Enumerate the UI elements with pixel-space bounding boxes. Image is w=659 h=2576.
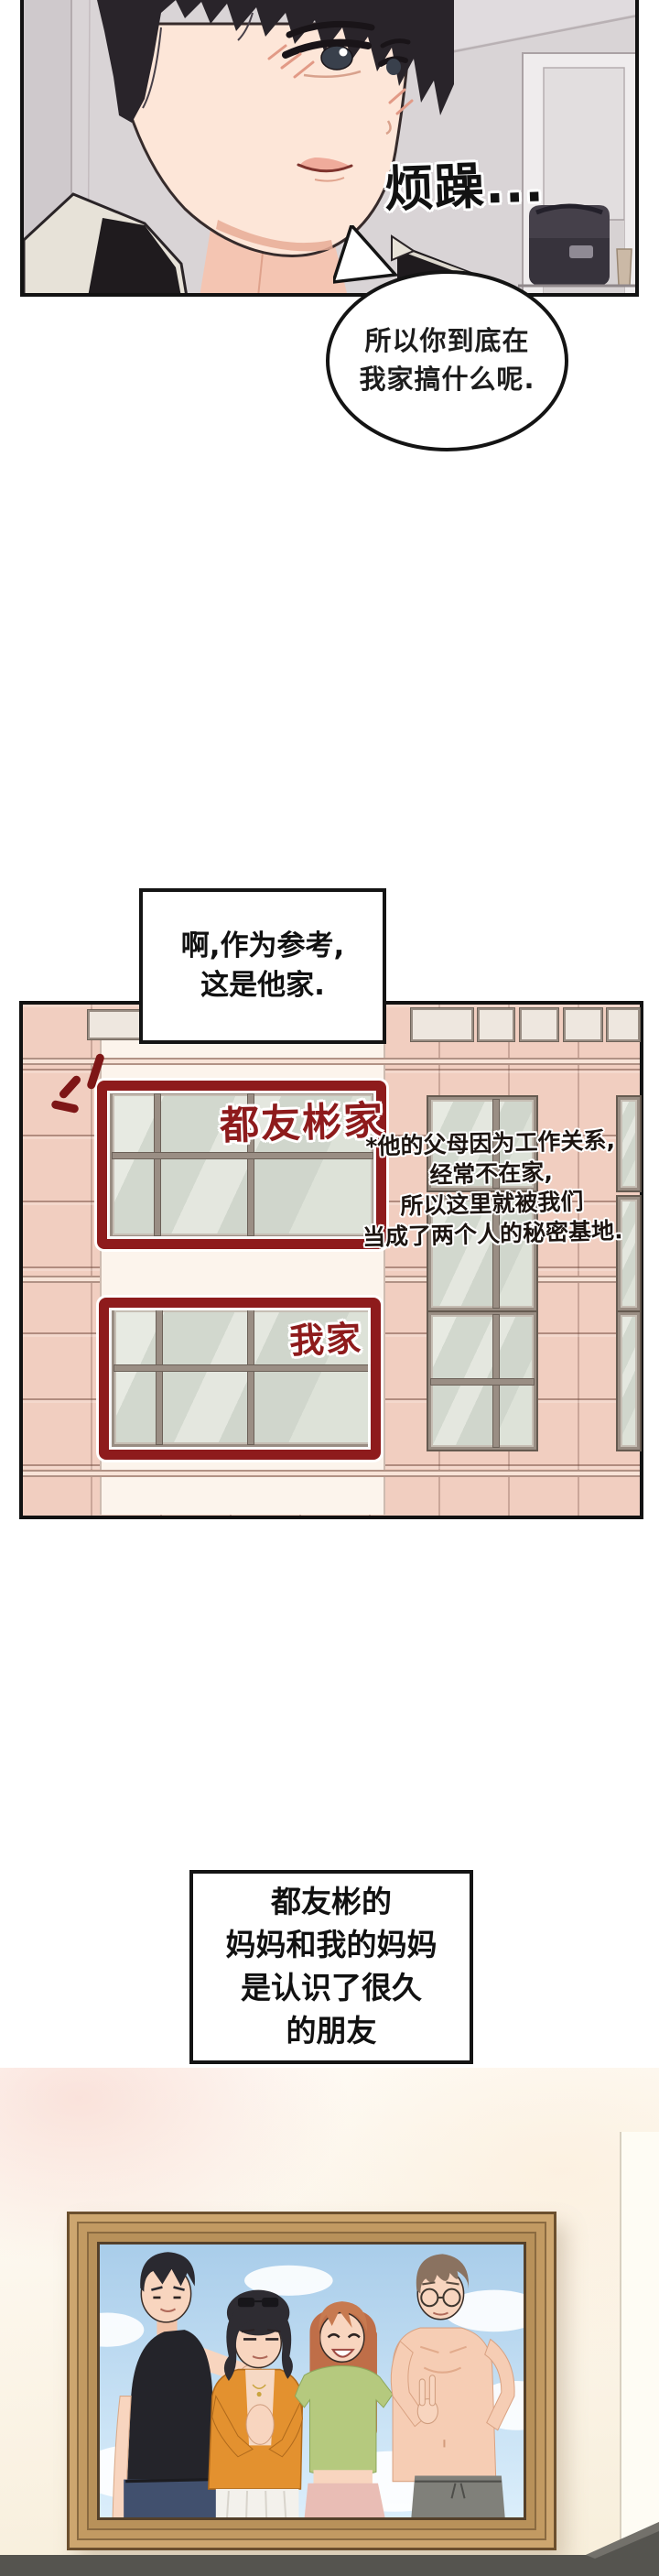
caption-box-reference: 啊,作为参考, 这是他家. (139, 888, 386, 1044)
window (88, 1010, 143, 1039)
panel-building: 都友彬家 我家 *他的父母因为工作关系, 经常不在家, 所以这里就被我们 当成了… (19, 1001, 643, 1519)
emphasis-stroke (50, 1100, 79, 1114)
speech-line: 我家搞什么呢. (359, 363, 535, 397)
comic-page: 烦躁... 所以你到底在 我家搞什么呢. 啊,作为参考, 这是他家. (0, 0, 659, 2576)
family-photo-illustration (100, 2244, 524, 2517)
emphasis-stroke (58, 1074, 82, 1100)
floor-shadow (0, 2509, 659, 2576)
window (411, 1008, 473, 1041)
speech-bubble: 所以你到底在 我家搞什么呢. (326, 270, 568, 451)
floor-divider (23, 1058, 640, 1065)
window (428, 1312, 536, 1450)
wall-corner (620, 2132, 659, 2541)
family-photo (97, 2242, 526, 2520)
photo-frame-layer (87, 2232, 536, 2530)
caption-line: 的朋友 (286, 2010, 377, 2053)
window (564, 1008, 602, 1041)
speech-bubble-tail (333, 225, 397, 284)
rice-cooker (529, 205, 610, 286)
label-my-home: 我家 (288, 1310, 363, 1364)
building-footnote: *他的父母因为工作关系, 经常不在家, 所以这里就被我们 当成了两个人的秘密基地… (335, 1125, 647, 1254)
window-mullion (431, 1379, 534, 1385)
sfx-text: 烦躁... (384, 158, 568, 217)
caption-line: 妈妈和我的妈妈 (226, 1924, 438, 1967)
speech-line: 所以你到底在 (364, 324, 529, 359)
floor-divider (23, 1276, 100, 1283)
window (607, 1008, 640, 1041)
window (478, 1008, 514, 1041)
caption-line: 这是他家. (200, 966, 325, 1005)
cup (617, 249, 632, 286)
closeup-illustration (24, 0, 639, 295)
photo-frame (67, 2212, 556, 2550)
caption-line: 啊,作为参考, (181, 927, 345, 966)
window (618, 1312, 640, 1450)
photo-frame-layer (77, 2222, 546, 2540)
panel-closeup (20, 0, 639, 297)
caption-line: 是认识了很久 (241, 1967, 422, 2010)
caption-line: 都友彬的 (271, 1881, 392, 1924)
caption-box-moms: 都友彬的 妈妈和我的妈妈 是认识了很久 的朋友 (189, 1870, 473, 2064)
window (520, 1008, 558, 1041)
floor-divider (23, 1470, 640, 1477)
